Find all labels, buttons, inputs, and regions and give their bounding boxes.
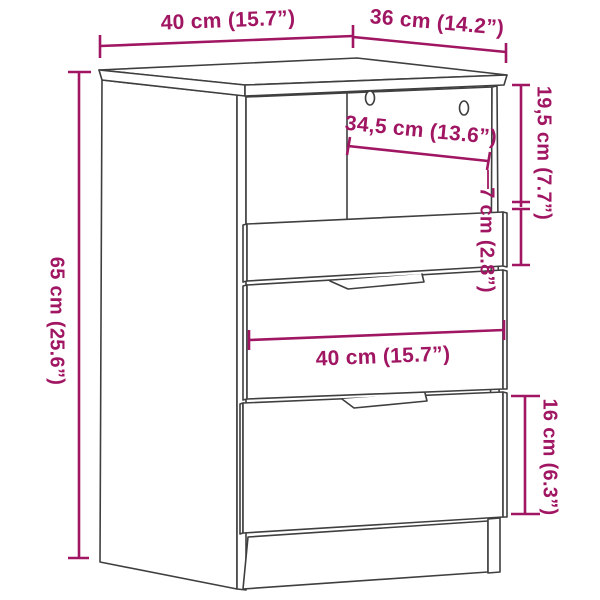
dim-line-top-width bbox=[100, 36, 353, 46]
dimension-label-bottom-drawer-height: 16 cm (6.3”) bbox=[538, 399, 561, 516]
dimension-diagram: 40 cm (15.7”) 36 cm (14.2”) 65 cm (25.6”… bbox=[0, 0, 600, 600]
dimension-label-front-width: 40 cm (15.7”) bbox=[315, 342, 450, 371]
screw-hole-left bbox=[366, 91, 375, 105]
screw-hole-right bbox=[460, 101, 469, 115]
dimension-label-top-section-height: 19,5 cm (7.7”) bbox=[532, 86, 555, 220]
side-panel bbox=[100, 80, 237, 589]
drawer-3-front[interactable] bbox=[243, 392, 503, 533]
cabinet-line-art bbox=[0, 0, 600, 600]
right-leg bbox=[488, 518, 500, 573]
drawer-1-front[interactable] bbox=[247, 212, 503, 281]
dim-line-top-depth bbox=[353, 37, 506, 52]
dimension-label-top-drawer-height: 7 cm (2.8”) bbox=[475, 187, 498, 293]
dimension-label-overall-height: 65 cm (25.6”) bbox=[45, 257, 68, 385]
drawer-3-right-end bbox=[503, 392, 507, 517]
drawer-1-right-end bbox=[503, 212, 507, 267]
dimension-label-top-width: 40 cm (15.7”) bbox=[160, 6, 295, 35]
